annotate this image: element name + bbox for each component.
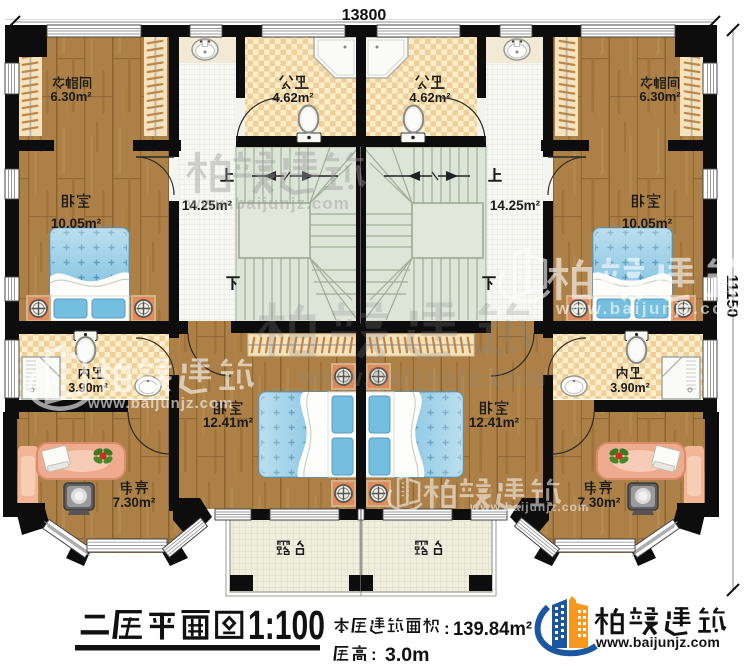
svg-text:14.25m²: 14.25m²	[490, 198, 541, 213]
svg-text:www.baijunjz.com: www.baijunjz.com	[595, 634, 720, 650]
svg-text:www.baijunjz.com: www.baijunjz.com	[186, 194, 350, 213]
svg-text:www.baijunjz.com: www.baijunjz.com	[555, 299, 743, 318]
svg-text:12.41m²: 12.41m²	[203, 415, 254, 430]
svg-text:www.baijunjz.com: www.baijunjz.com	[469, 500, 590, 514]
svg-text:3.90m²: 3.90m²	[610, 381, 650, 395]
svg-text:12.41m²: 12.41m²	[469, 415, 520, 430]
svg-text:13800: 13800	[342, 7, 387, 24]
svg-text:10.05m²: 10.05m²	[622, 216, 673, 231]
svg-text::: :	[444, 619, 450, 638]
svg-text:4.62m²: 4.62m²	[272, 90, 314, 105]
svg-text:1:100: 1:100	[248, 602, 325, 648]
svg-text:139.84m²: 139.84m²	[453, 618, 532, 640]
svg-text:10.05m²: 10.05m²	[51, 216, 102, 231]
svg-text:www.baijunjz.com: www.baijunjz.com	[87, 395, 233, 412]
svg-text:www.baijunjz.com: www.baijunjz.com	[299, 364, 548, 392]
svg-text::: :	[371, 645, 377, 664]
svg-text:6.30m²: 6.30m²	[50, 89, 92, 104]
svg-text:4.62m²: 4.62m²	[409, 90, 451, 105]
svg-text:3.0m: 3.0m	[385, 644, 429, 666]
svg-text:7.30m²: 7.30m²	[113, 495, 156, 510]
svg-text:6.30m²: 6.30m²	[639, 89, 681, 104]
